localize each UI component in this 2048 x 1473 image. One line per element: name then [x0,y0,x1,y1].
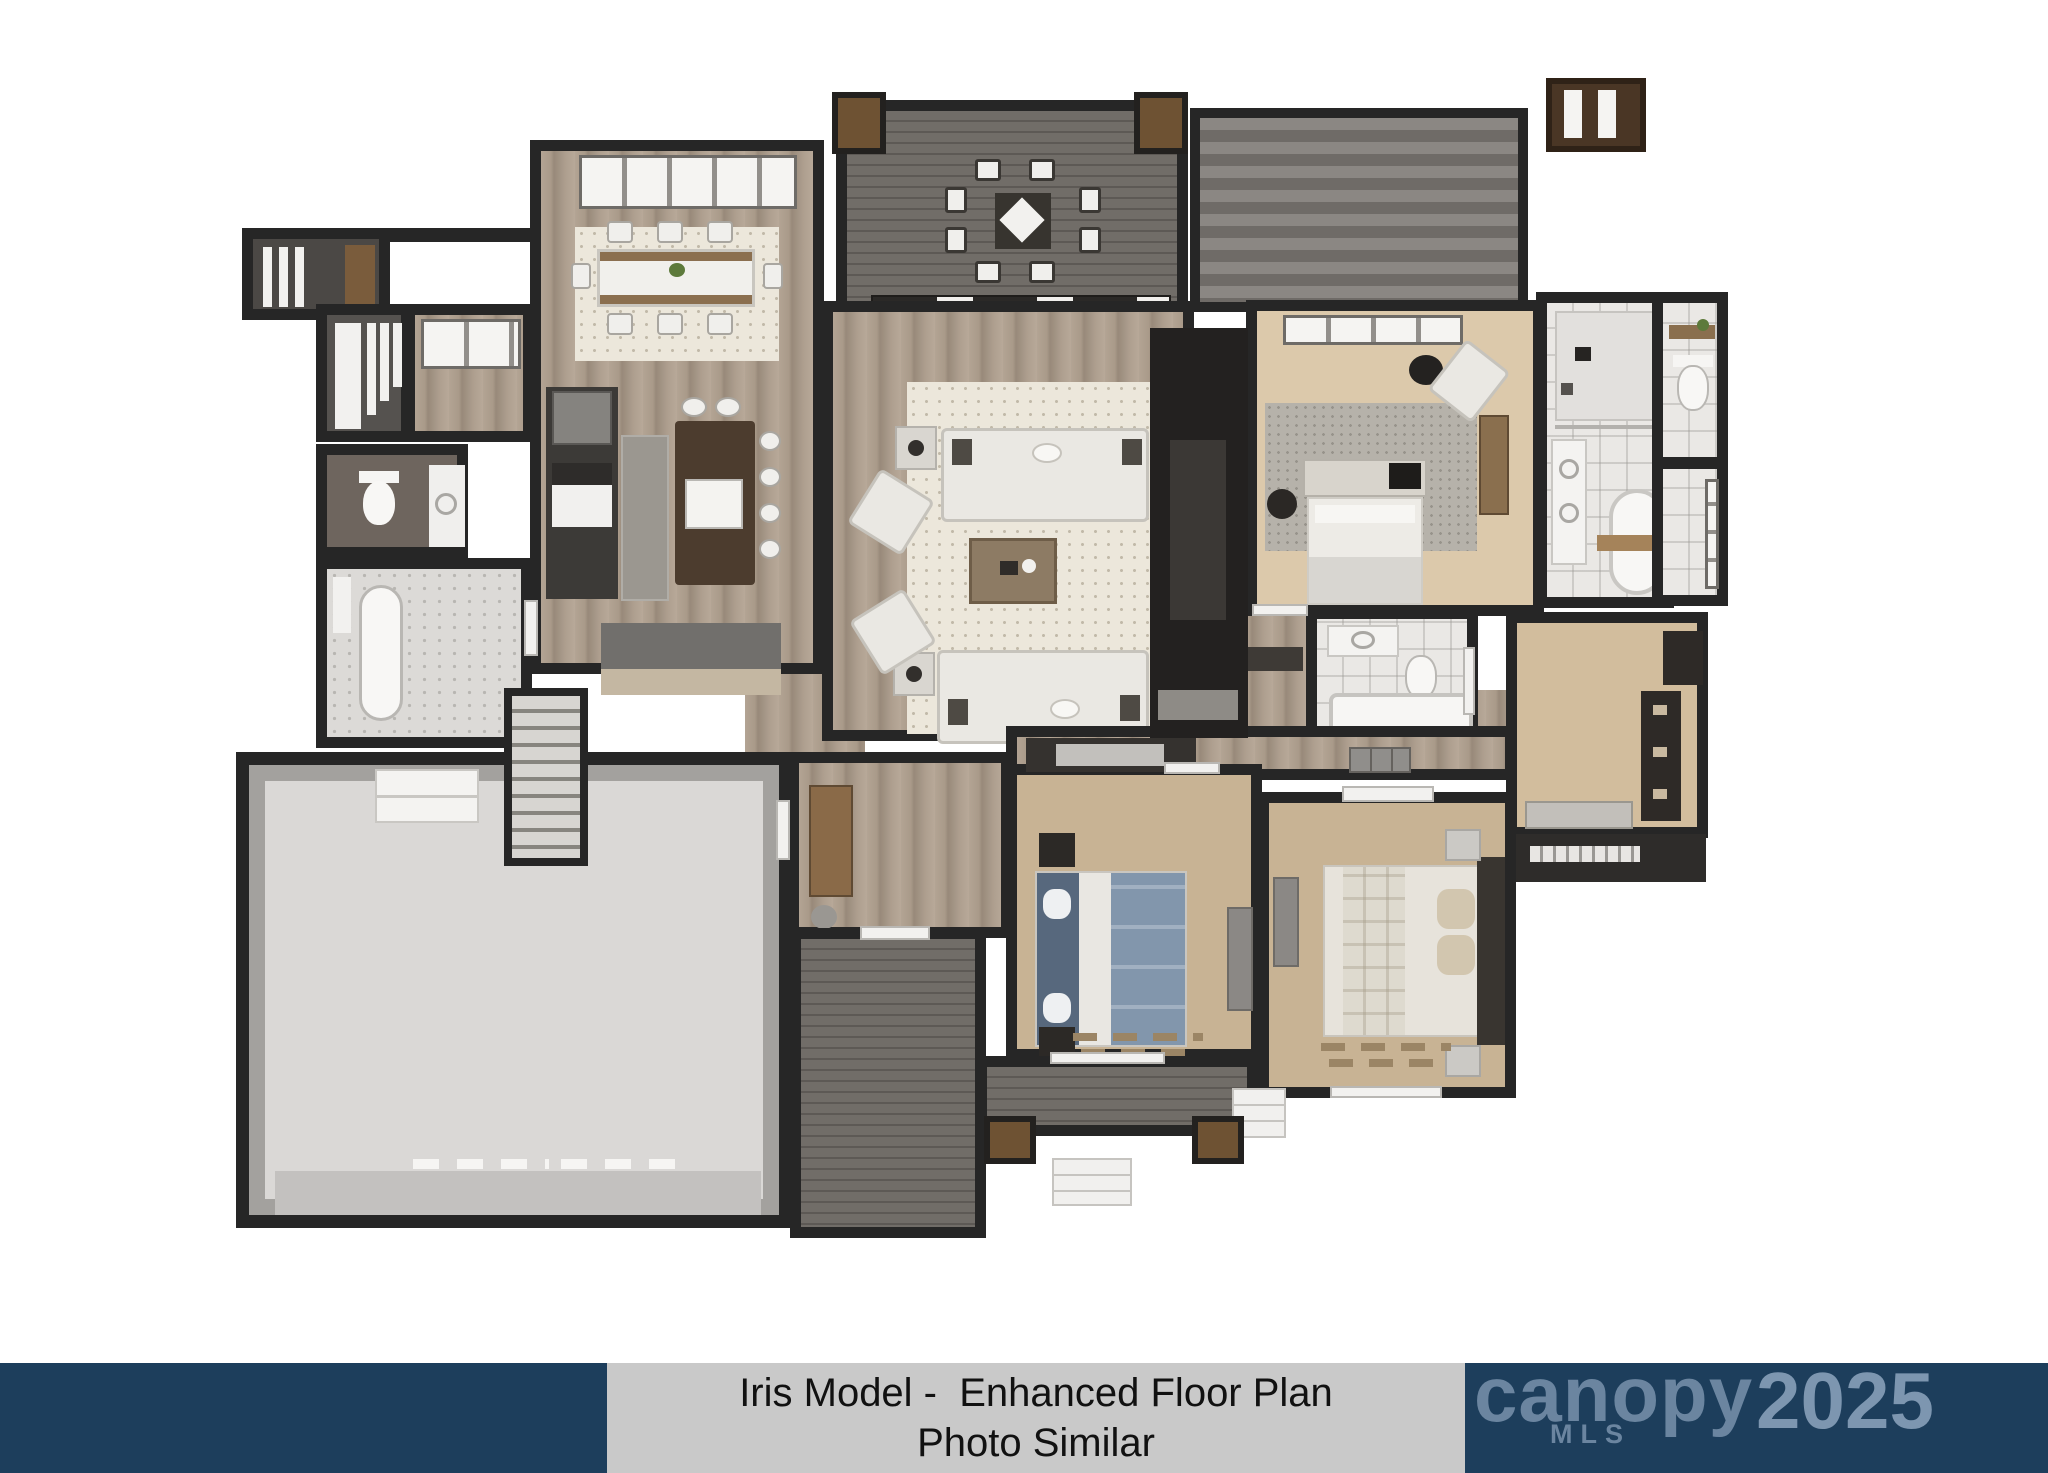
cooktop [552,463,612,485]
canopy-mls-label: MLS [1550,1419,1631,1450]
watermark-year: 2025 [1756,1363,1934,1447]
pantry-shelf [393,323,402,387]
end-table [895,426,937,470]
closet-door [1056,744,1164,766]
closet-bench [1525,801,1633,829]
master-vanity [1551,439,1587,565]
bathroom-3 [316,558,532,748]
bed3-blanket [1343,867,1405,1035]
toilet-bowl [1677,365,1709,411]
shower [359,585,403,721]
porch-roof [1190,108,1528,312]
stair-landing [601,669,781,695]
walk-in-closet [1506,612,1708,838]
front-door [345,245,375,307]
flex-window-nook [404,304,534,442]
bed2-pillow [1043,993,1071,1023]
outdoor-chair [1079,227,1101,253]
bar-stool [759,503,781,523]
dining-bay-window [579,155,797,209]
dining-chair [707,313,733,335]
dining-table [597,249,755,307]
nightstand [1039,833,1075,867]
basket [811,905,837,929]
bar-stool [759,431,781,451]
dining-chair [571,263,591,289]
coffee-table-decor [1000,561,1018,575]
bath2-door [1463,647,1475,715]
dining-chair [707,221,733,243]
beam-slot [1598,90,1616,138]
round-side-table [1267,489,1297,519]
coffee-table [969,538,1057,604]
caption-line1: Iris Model - Enhanced Floor Plan [739,1368,1333,1418]
staircase [504,688,588,866]
nook-window [421,319,521,369]
sink [435,493,457,515]
closet-shelving [1663,631,1703,685]
master-door [1252,604,1308,616]
bedroom2-window [1050,1052,1165,1064]
wc-shelf [1669,325,1715,339]
bed2-pillow [1043,889,1071,919]
deck-post [832,92,886,154]
carpet-pattern [1329,1059,1445,1067]
bar-stool [715,397,741,417]
deck-post [1192,1116,1244,1164]
deck-post [1134,92,1188,154]
foundation-vent [1530,846,1640,862]
outdoor-chair [945,227,967,253]
table-lamp [908,440,924,456]
bath3-shelf [333,577,351,633]
shelf-item [1653,789,1667,799]
island-sink [685,479,743,529]
sink [1559,503,1579,523]
sink [1351,631,1375,649]
master-bedroom [1246,300,1544,616]
sofa-pillow [948,699,968,725]
porch-sidelight [263,247,272,307]
headboard [1477,857,1505,1045]
hearth-ledge [1158,690,1238,720]
dining-kitchen [530,140,824,674]
dining-chair [763,263,783,289]
bathroom-2 [1306,608,1478,740]
carpet-pattern [1321,1043,1451,1051]
mudroom-bench [809,785,853,897]
walk-in-shower [1555,311,1655,421]
sofa-pillow [952,439,972,465]
bed-tray [1389,463,1421,489]
sink [1559,459,1579,479]
dining-chair [657,313,683,335]
deck-steps [1052,1158,1132,1206]
bedroom-3 [1258,792,1516,1098]
fireplace-wall [1150,328,1248,738]
bath2-vanity [1327,625,1399,657]
sofa-pillow-round [1032,443,1062,463]
outdoor-table [995,193,1051,249]
roof-beam [1546,78,1646,152]
wc-plant [1697,319,1709,331]
bed3-pillow [1437,889,1475,929]
sofa-pillow [1122,439,1142,465]
master-bath-wing [1652,458,1728,606]
rear-deck [790,928,986,1238]
closet-exterior-wall [1516,834,1706,882]
bath3-door [524,600,538,656]
shelf-item [1653,747,1667,757]
pantry-shelf [367,323,376,415]
water-heater [375,769,479,823]
dining-chair [607,313,633,335]
bar-stool [759,467,781,487]
bottom-bar: Iris Model - Enhanced Floor Plan Photo S… [0,1363,2048,1473]
shower-drain [1575,347,1591,361]
caption-box: Iris Model - Enhanced Floor Plan Photo S… [607,1363,1465,1473]
outdoor-chair [1029,261,1055,283]
outdoor-chair [1079,187,1101,213]
bed-pillows [1315,505,1415,523]
outdoor-chair [1029,159,1055,181]
table-plant [669,263,685,277]
garage-apron [275,1171,761,1215]
nightstand [1445,829,1481,861]
bed2 [1035,871,1187,1047]
fireplace-insert [1170,440,1226,620]
bedroom-2 [1006,764,1262,1060]
outdoor-placemat [999,197,1044,242]
garage-entry-door [776,800,790,860]
refrigerator [552,391,612,445]
deck-post [984,1116,1036,1164]
coffee-table-decor [1022,559,1036,573]
mudroom-deck-door [860,926,930,940]
master-dresser [1479,415,1509,515]
closet-shelving [1641,691,1681,821]
hall-builtin-drawers [1349,747,1411,773]
outdoor-chair [945,187,967,213]
bar-stool [681,397,707,417]
stair-enclosure-wall [601,623,781,669]
sofa-pillow-round [1050,699,1080,719]
garage-door-marking [413,1159,549,1169]
dining-chair [607,221,633,243]
bedroom3-door [1342,786,1434,802]
outdoor-chair [975,261,1001,283]
bath-window [1705,479,1719,589]
dresser [1227,907,1253,1011]
page: Iris Model - Enhanced Floor Plan Photo S… [0,0,2048,1473]
shower-control [1561,383,1573,395]
bedroom3-window [1330,1086,1442,1098]
bed3 [1323,865,1487,1037]
dresser [1273,877,1299,967]
outdoor-chair [975,159,1001,181]
shower-glass [1555,425,1655,429]
pantry-shelf [380,323,389,401]
powder-vanity [429,465,465,547]
sofa [941,428,1149,522]
porch-sidelight [295,247,304,307]
dining-chair [657,221,683,243]
table-lamp [906,666,922,682]
carpet-pattern [1073,1033,1203,1041]
caption-line2: Photo Similar [917,1418,1155,1468]
mudroom [788,752,1012,938]
bar-stool [759,539,781,559]
water-closet [1652,292,1728,468]
bed3-pillow [1437,935,1475,975]
powder-room [316,444,468,558]
floor-plan [0,0,2048,1363]
pantry [316,304,412,442]
beam-slot [1564,90,1582,138]
bedroom2-door [1164,762,1220,774]
great-room [822,301,1194,741]
toilet-bowl [363,481,395,525]
shelf-item [1653,705,1667,715]
bed2-duvet [1111,873,1185,1045]
pantry-shelf [335,323,361,429]
sofa-pillow [1120,695,1140,721]
bed-blanket [1309,557,1421,603]
master-bed [1307,497,1423,605]
porch-sidelight [279,247,288,307]
kitchen-runner-rug [621,435,669,601]
master-window [1283,315,1463,345]
garage-door-marking [561,1159,691,1169]
